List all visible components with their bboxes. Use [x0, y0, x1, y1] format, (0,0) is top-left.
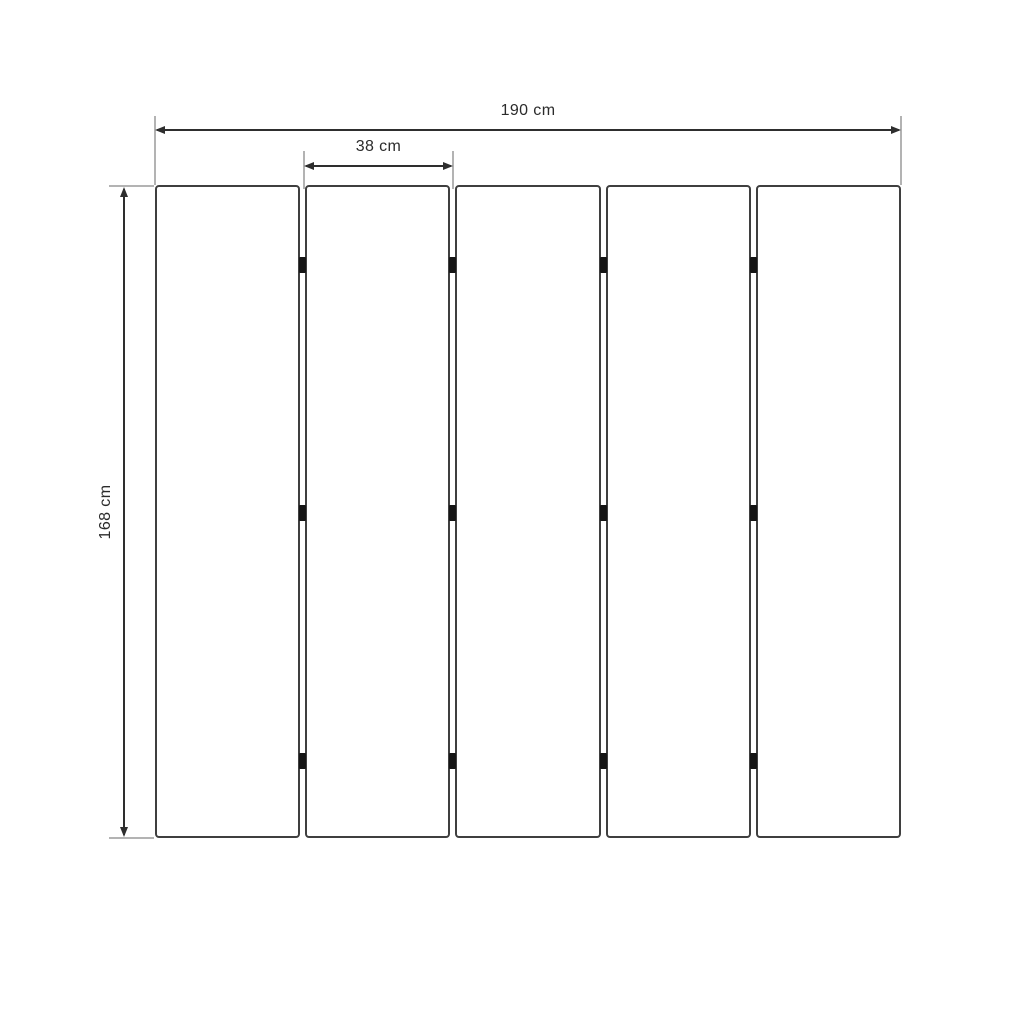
arrowhead-right-icon: [891, 126, 901, 134]
drawing-stage: 190 cm 38 cm 168 cm: [0, 0, 1024, 1024]
height-dimension-label: 168 cm: [97, 485, 115, 540]
panel-width-extension-line-left: [303, 151, 305, 189]
arrowhead-down-icon: [120, 827, 128, 837]
height-dimension-line: [123, 189, 125, 835]
panel-4: [606, 185, 751, 838]
arrowhead-right-icon: [443, 162, 453, 170]
arrowhead-up-icon: [120, 187, 128, 197]
arrowhead-left-icon: [304, 162, 314, 170]
height-extension-line-top: [109, 185, 154, 187]
panel-5: [756, 185, 901, 838]
total-width-dimension-line: [157, 129, 899, 131]
panel-2: [305, 185, 450, 838]
panel-3: [455, 185, 600, 838]
panel-width-dimension-label: 38 cm: [305, 138, 452, 156]
panel-1: [155, 185, 300, 838]
total-width-dimension-label: 190 cm: [155, 102, 901, 120]
panel-width-extension-line-right: [452, 151, 454, 189]
panel-width-dimension-line: [306, 165, 451, 167]
height-extension-line-bottom: [109, 837, 154, 839]
arrowhead-left-icon: [155, 126, 165, 134]
panels-row: [155, 185, 901, 838]
